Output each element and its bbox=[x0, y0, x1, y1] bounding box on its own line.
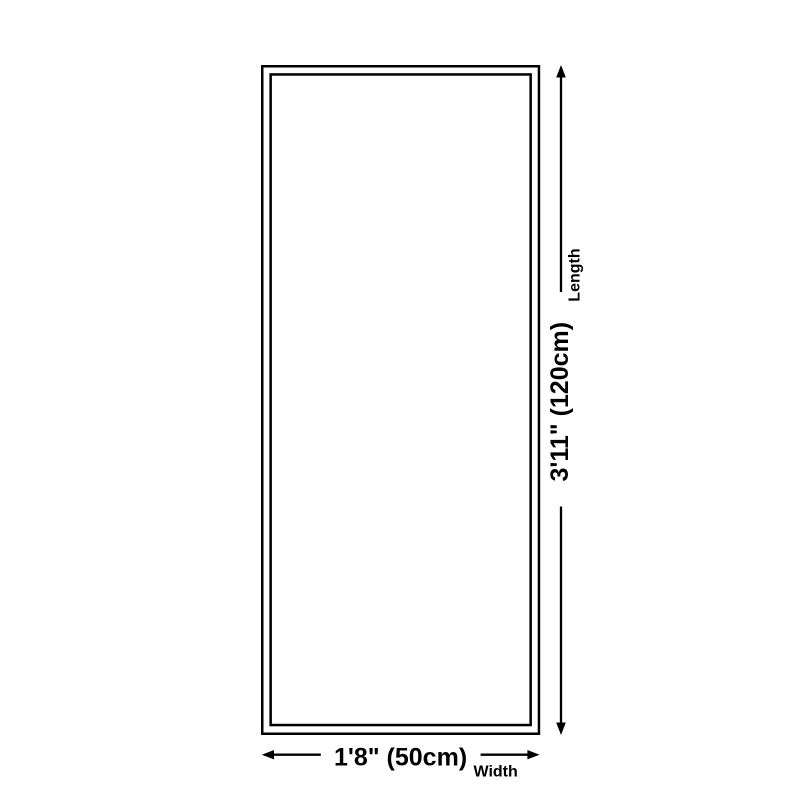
svg-text:1'8" (50cm): 1'8" (50cm) bbox=[334, 744, 467, 772]
svg-text:Length: Length bbox=[567, 248, 584, 301]
svg-text:3'11" (120cm): 3'11" (120cm) bbox=[546, 322, 574, 482]
svg-text:Width: Width bbox=[474, 763, 518, 780]
